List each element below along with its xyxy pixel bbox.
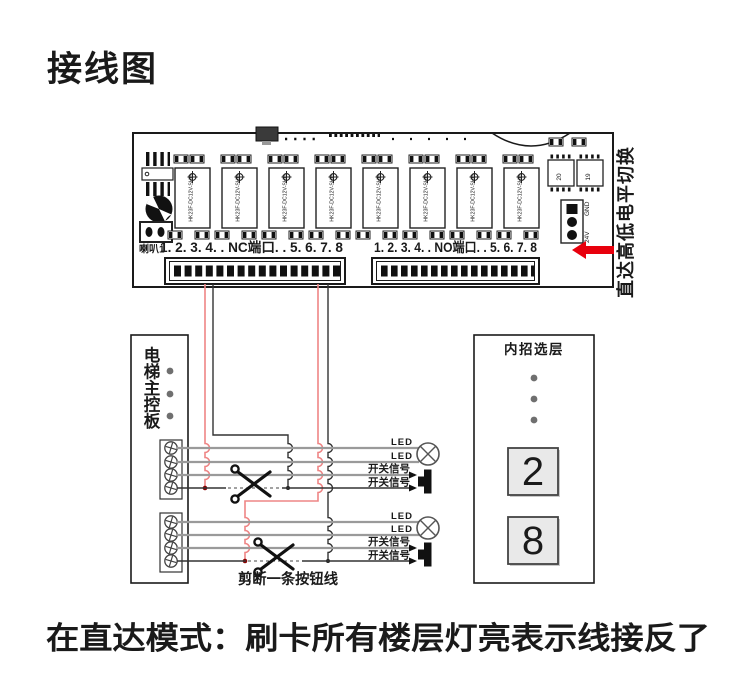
screw-terminal (165, 469, 177, 481)
relay-label: HK23F-DC12V-SHG (189, 174, 195, 221)
switch-signal-label: 开关信号 (368, 476, 410, 489)
controller-title-char: 板 (144, 411, 161, 431)
wire-arrowhead (409, 485, 417, 492)
ellipsis-dot (167, 413, 174, 420)
floor-button-2: 2 (508, 448, 560, 497)
ellipsis-dot (167, 391, 174, 398)
circuit-board: 喇叭1 HK23F-DC12V-SHG HK23F-DC12V-SHG HK23… (133, 127, 613, 287)
switch-signal-label: 开关信号 (368, 549, 410, 562)
push-button-icon (418, 543, 432, 567)
panel-title: 内招选层 (504, 341, 564, 357)
floor-button-8-label: 8 (522, 519, 544, 563)
relay-label: HK23F-DC12V-SHG (471, 174, 477, 221)
chip-label-right: 19 (585, 173, 592, 181)
level-switch-text: 直达高低电平切换 (615, 146, 636, 298)
jumper-gnd-label: GND (584, 201, 591, 216)
screw-terminal (165, 482, 177, 494)
controller-title-char: 控 (144, 395, 161, 415)
ellipsis-dot (531, 396, 538, 403)
ellipsis-dot (531, 417, 538, 424)
speaker-connector (140, 222, 172, 242)
page-title: 接线图 (47, 50, 158, 89)
screw-terminal (165, 529, 177, 541)
relay-label: HK23F-DC12V-SHG (424, 174, 430, 221)
smd-resistor (572, 138, 586, 146)
controller-title-char: 主 (144, 378, 161, 398)
ic-chip-left (142, 168, 173, 180)
push-button-icon (418, 470, 432, 494)
wire-arrowhead (409, 558, 417, 565)
dip-switch-lever (262, 141, 271, 145)
screw-terminal (165, 442, 177, 454)
scissors-icon (231, 465, 270, 502)
footer-warning: 在直达模式：刷卡所有楼层灯亮表示线接反了 (46, 621, 710, 656)
lamp-icon (417, 443, 439, 465)
wire-red-2 (245, 284, 323, 561)
floor-button-8: 8 (508, 517, 560, 566)
nc-port-label: 1. 2. 3. 4. . NC端口. . 5. 6. 7. 8 (160, 239, 343, 255)
smd-resistor (549, 138, 563, 146)
wiring-diagram-page: 接线图 喇叭1 HK (0, 0, 750, 698)
chip-label-left: 20 (556, 173, 563, 181)
ellipsis-dot (167, 368, 174, 375)
optocoupler-right (577, 157, 603, 190)
screw-terminal (165, 456, 177, 468)
buzzer (146, 196, 173, 223)
switch-signal-label: 开关信号 (368, 462, 410, 475)
led-label: LED (391, 524, 413, 535)
wire-black-2 (328, 284, 333, 561)
screw-terminal (165, 555, 177, 567)
relay-label: HK23F-DC12V-SHG (377, 174, 383, 221)
led-label: LED (391, 511, 413, 522)
screw-terminal (165, 516, 177, 528)
relay-label: HK23F-DC12V-SHG (330, 174, 336, 221)
ellipsis-dot (531, 375, 538, 382)
relay-label: HK23F-DC12V-SHG (518, 174, 524, 221)
nc-terminal-strip (165, 258, 345, 284)
controller-title-char: 电 (144, 345, 161, 365)
main-controller-box: 电 梯 主 控 板 (131, 335, 188, 583)
no-terminal-strip (372, 258, 539, 284)
wire-black-1 (213, 284, 293, 488)
jumper-header (561, 200, 583, 243)
wire-arrowhead (409, 472, 417, 479)
screw-terminal (165, 542, 177, 554)
switch-signal-label: 开关信号 (368, 535, 410, 548)
led-label: LED (391, 451, 413, 462)
wire-arrowhead (409, 545, 417, 552)
optocoupler-left (548, 157, 574, 190)
jumper-24v-label: 24V (584, 231, 591, 243)
wire-red-1 (205, 284, 210, 488)
floor-wiring-group-1: LED LED 开关信号 开关信号 (177, 437, 439, 503)
led-label: LED (391, 437, 413, 448)
scissors-icon (254, 538, 293, 575)
lamp-icon (417, 517, 439, 539)
cut-note: 剪断一条按钮线 (238, 570, 338, 588)
no-port-label: 1. 2. 3. 4. . NO端口. . 5. 6. 7. 8 (374, 239, 537, 255)
dip-switch (256, 127, 278, 141)
controller-title-char: 梯 (144, 362, 161, 382)
floor-wiring-group-2: LED LED 开关信号 开关信号 剪断一条按钮线 (177, 511, 439, 588)
floor-button-2-label: 2 (522, 450, 544, 494)
relay-label: HK23F-DC12V-SHG (236, 174, 242, 221)
relay-label: HK23F-DC12V-SHG (283, 174, 289, 221)
car-panel-box: 内招选层 2 8 (474, 335, 594, 583)
